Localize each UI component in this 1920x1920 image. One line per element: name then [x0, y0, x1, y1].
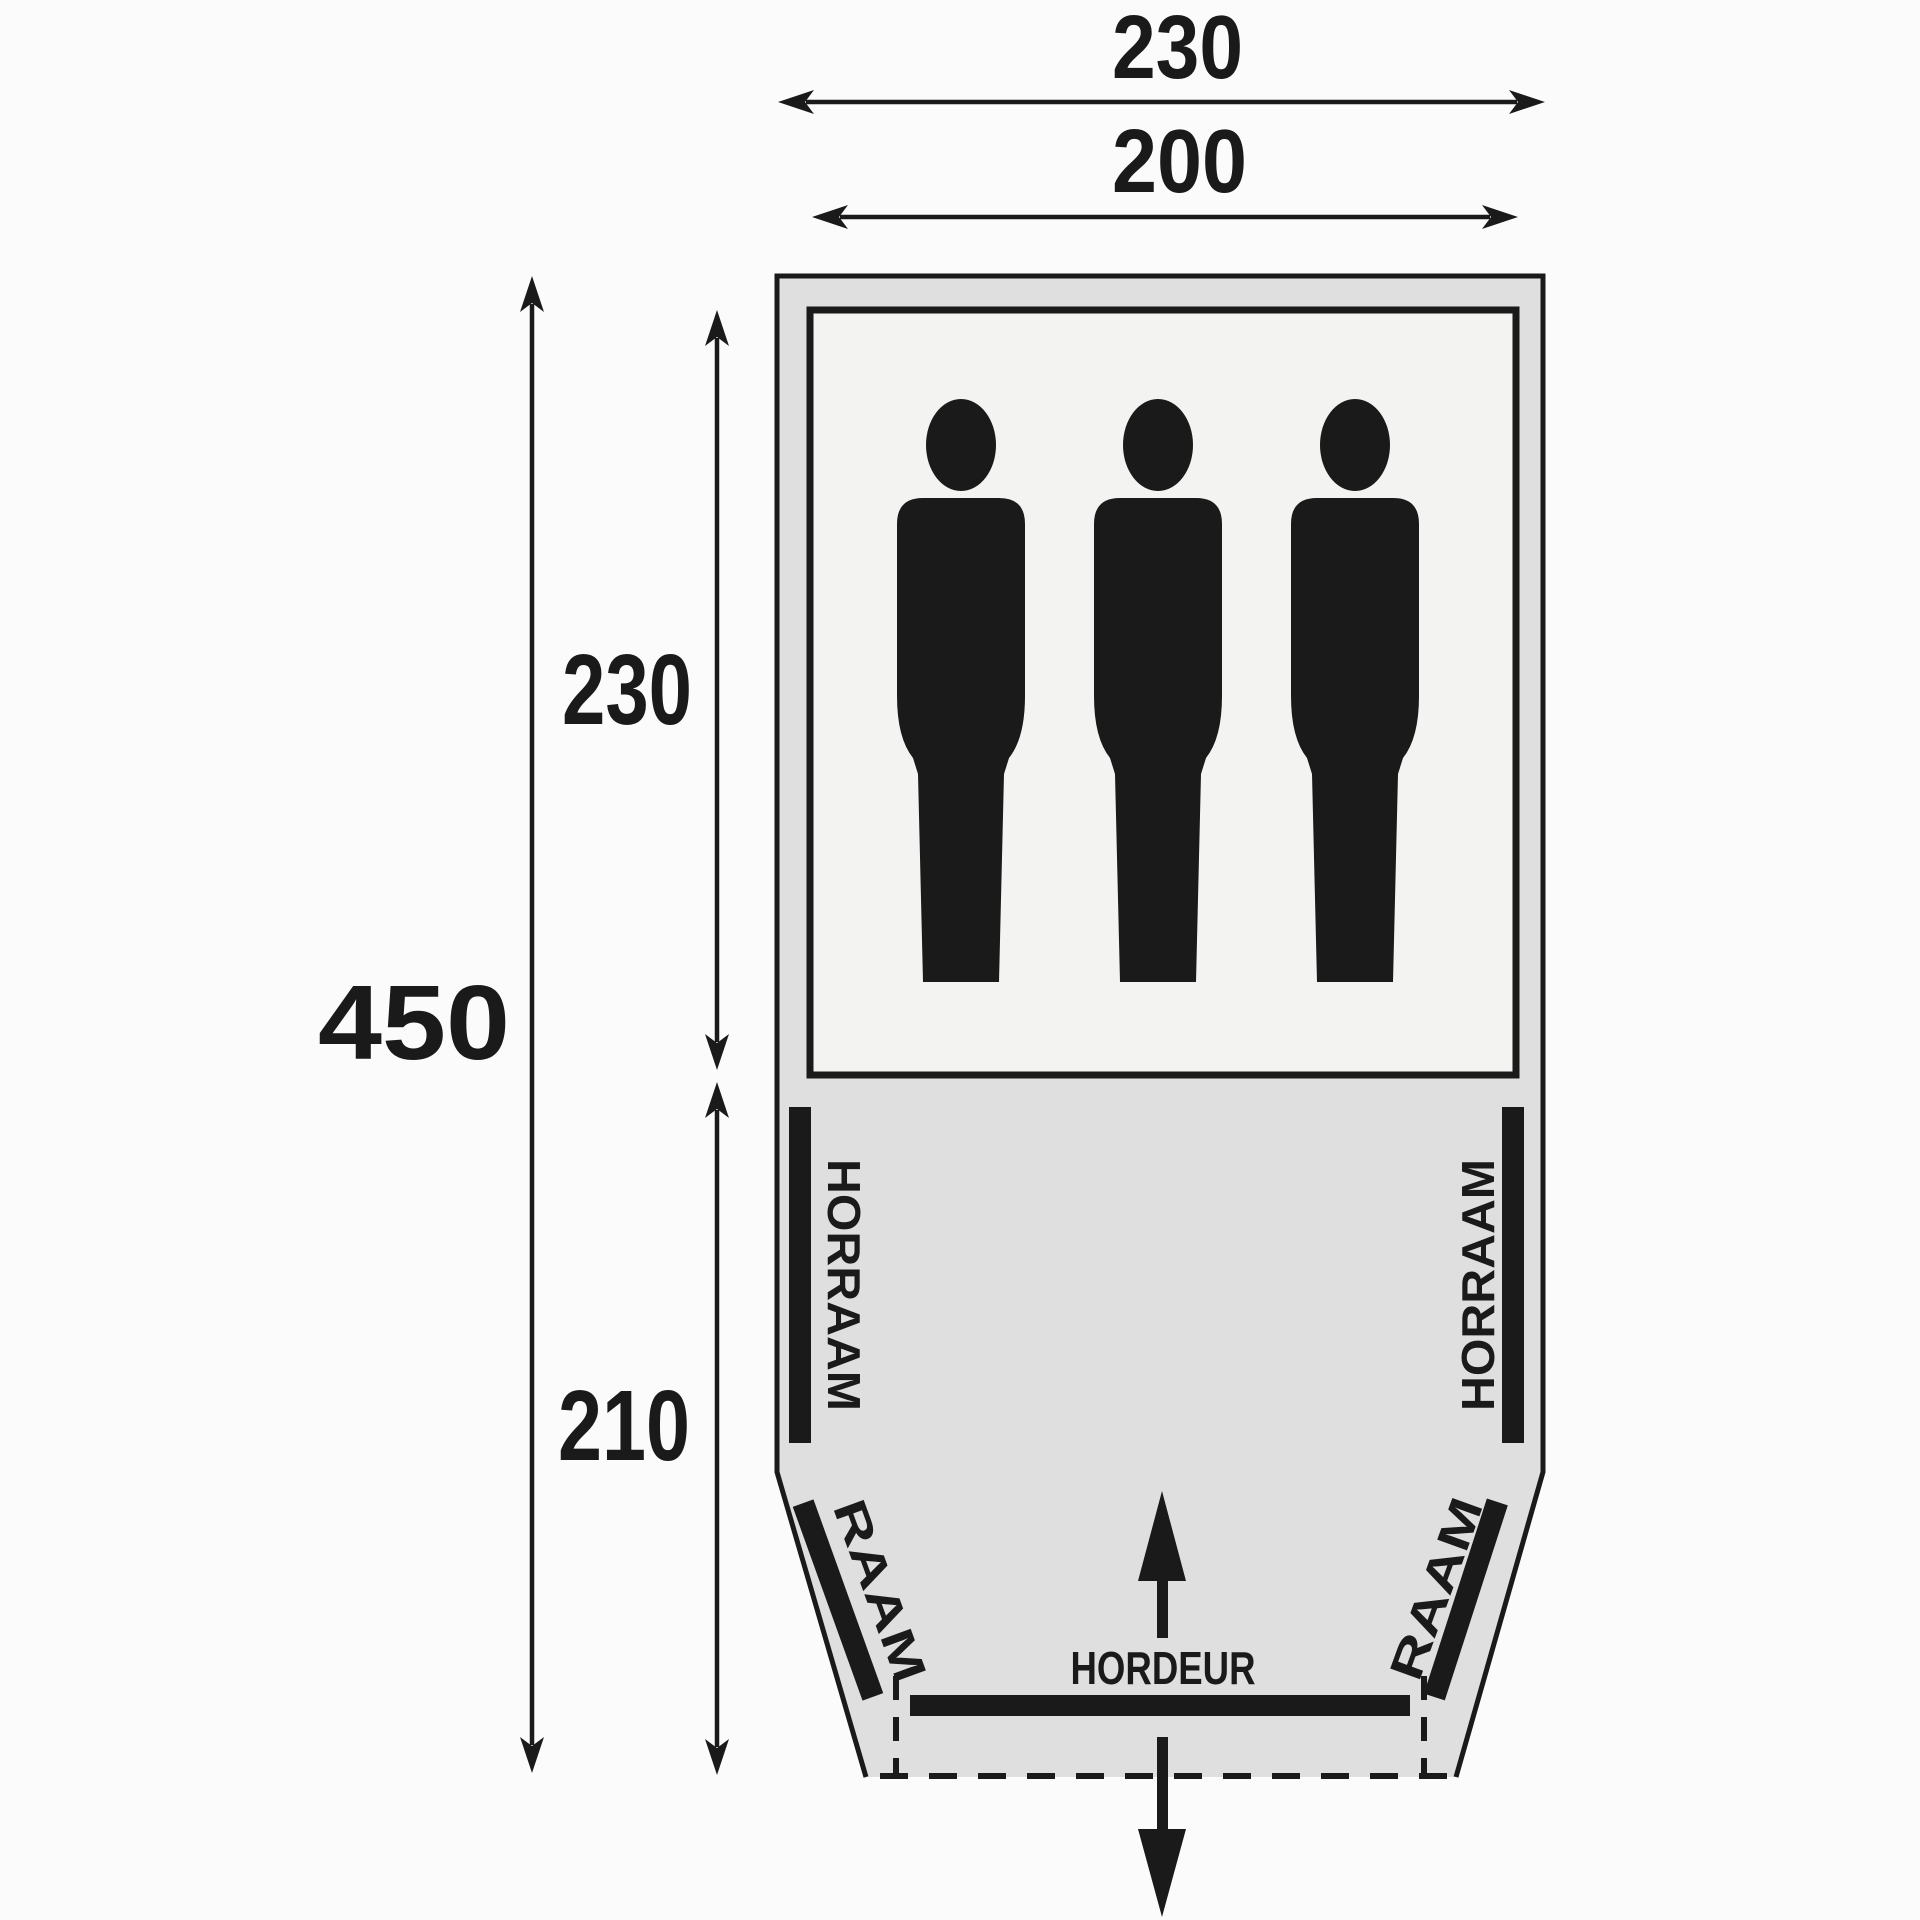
tent-floorplan-diagram: HORRAAM HORRAAM RAAM RAAM HORDEUR 230 20…: [0, 0, 1920, 1920]
mesh-window-left-label: HORRAAM: [818, 1159, 870, 1411]
dim-total-length: 450: [318, 276, 544, 1773]
mesh-window-bar-left: [789, 1107, 811, 1443]
dim-cabin-length: 230: [562, 310, 729, 1070]
person-silhouettes: [897, 399, 1419, 982]
mesh-window-bar-right: [1502, 1107, 1524, 1443]
dim-outer-width-value: 230: [1112, 0, 1243, 98]
sleeping-cabin: [810, 310, 1516, 1075]
dim-inner-width: 200: [812, 112, 1518, 229]
mesh-door-bar: [910, 1695, 1410, 1716]
mesh-door-label: HORDEUR: [1071, 1642, 1256, 1694]
dim-porch-length: 210: [558, 1082, 729, 1775]
floorplan-svg: HORRAAM HORRAAM RAAM RAAM HORDEUR 230 20…: [0, 0, 1920, 1920]
dim-total-length-value: 450: [318, 964, 510, 1082]
dim-cabin-length-value: 230: [562, 634, 692, 746]
dim-inner-width-value: 200: [1112, 112, 1247, 212]
dim-outer-width: 230: [778, 0, 1545, 114]
dim-porch-length-value: 210: [558, 1370, 690, 1482]
mesh-window-right-label: HORRAAM: [1452, 1159, 1504, 1411]
